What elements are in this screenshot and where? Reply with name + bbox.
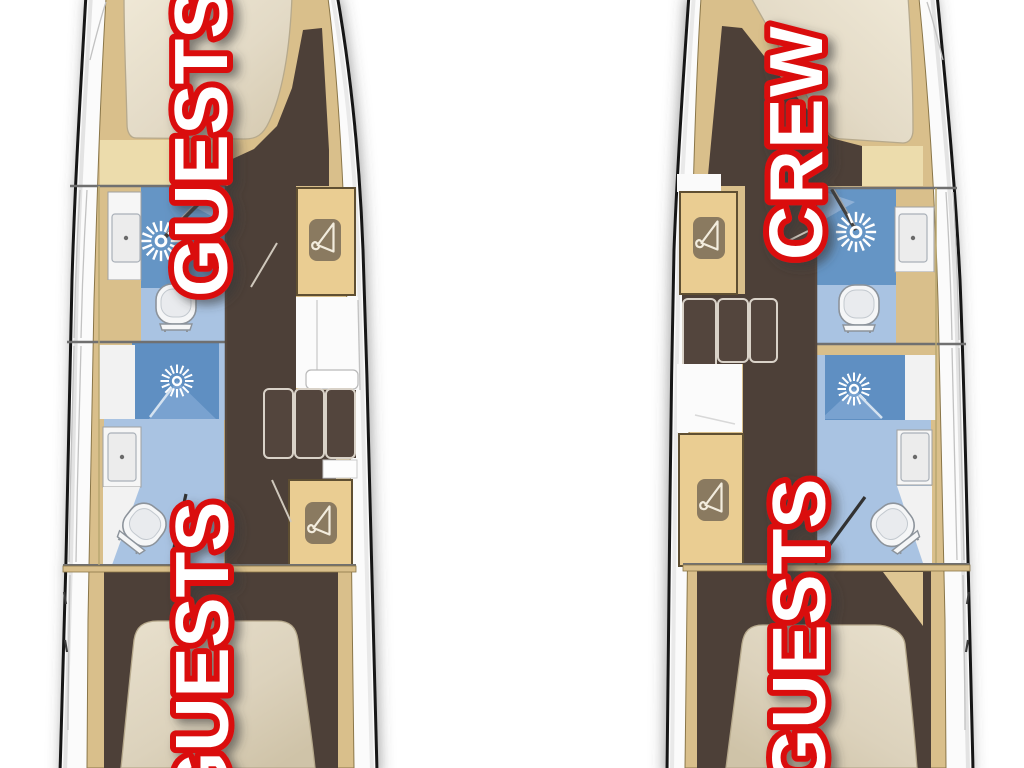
svg-text:CREW: CREW [754,25,838,260]
svg-text:GUESTS: GUESTS [160,502,244,768]
svg-text:GUESTS: GUESTS [159,0,243,297]
svg-text:GUESTS: GUESTS [757,479,841,768]
